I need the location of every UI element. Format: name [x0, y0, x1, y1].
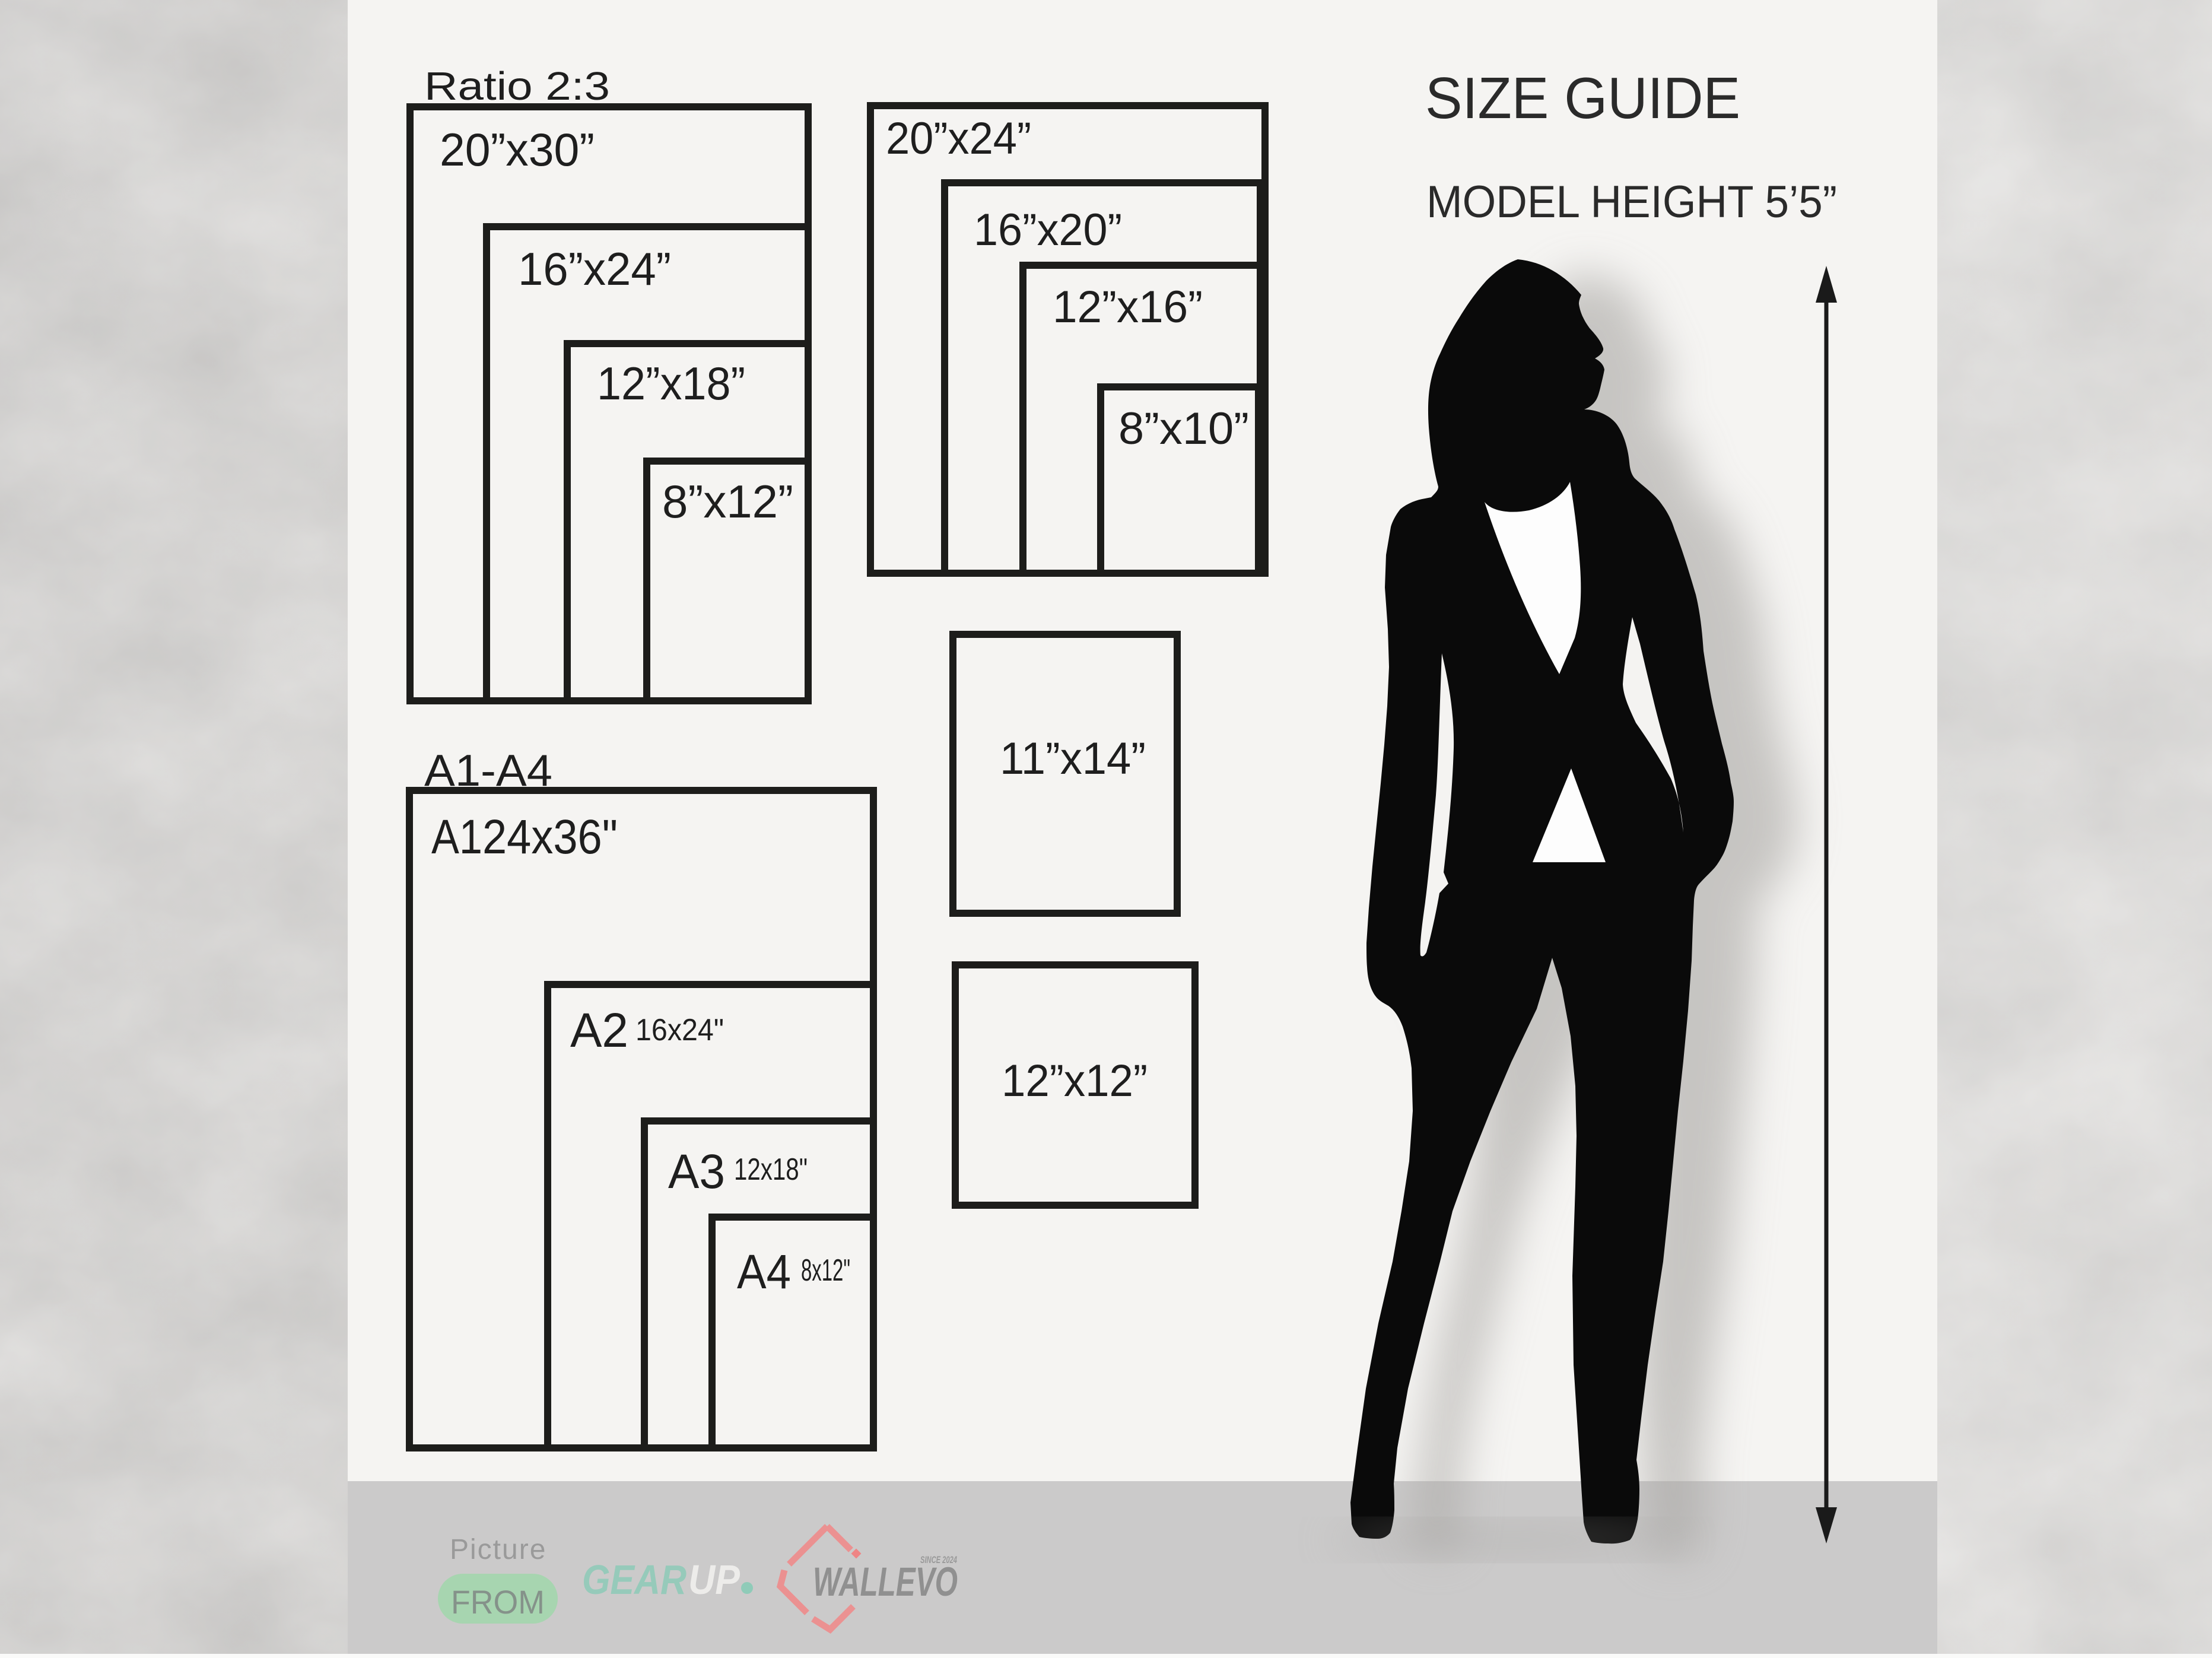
svg-text:A2: A2 — [570, 1003, 628, 1057]
svg-text:GEAR: GEAR — [582, 1557, 687, 1603]
svg-text:20”x30”: 20”x30” — [440, 123, 595, 176]
svg-text:MODEL HEIGHT 5’5”: MODEL HEIGHT 5’5” — [1426, 177, 1837, 227]
svg-text:24x36": 24x36" — [482, 810, 618, 864]
svg-text:12”x18”: 12”x18” — [597, 357, 745, 409]
svg-text:12”x12”: 12”x12” — [1002, 1056, 1148, 1106]
svg-text:UP: UP — [688, 1557, 740, 1603]
svg-text:SIZE GUIDE: SIZE GUIDE — [1425, 65, 1740, 131]
svg-text:16”x20”: 16”x20” — [974, 205, 1122, 255]
svg-text:A1: A1 — [431, 810, 482, 864]
svg-text:FROM: FROM — [451, 1583, 545, 1621]
svg-text:12x18": 12x18" — [734, 1152, 808, 1187]
svg-text:20”x24”: 20”x24” — [886, 113, 1031, 164]
svg-text:A4: A4 — [737, 1245, 791, 1299]
svg-text:Picture: Picture — [450, 1534, 546, 1565]
svg-text:8x12": 8x12" — [801, 1253, 850, 1288]
svg-text:12”x16”: 12”x16” — [1053, 282, 1203, 332]
svg-text:Ratio 2:3: Ratio 2:3 — [424, 64, 610, 109]
svg-text:WALLEVO: WALLEVO — [813, 1559, 958, 1605]
svg-text:8”x10”: 8”x10” — [1118, 404, 1249, 454]
svg-text:16x24": 16x24" — [635, 1013, 724, 1047]
svg-text:11”x14”: 11”x14” — [1000, 733, 1146, 784]
svg-text:A3: A3 — [668, 1145, 725, 1199]
svg-text:16”x24”: 16”x24” — [518, 243, 671, 295]
svg-text:8”x12”: 8”x12” — [662, 475, 793, 528]
